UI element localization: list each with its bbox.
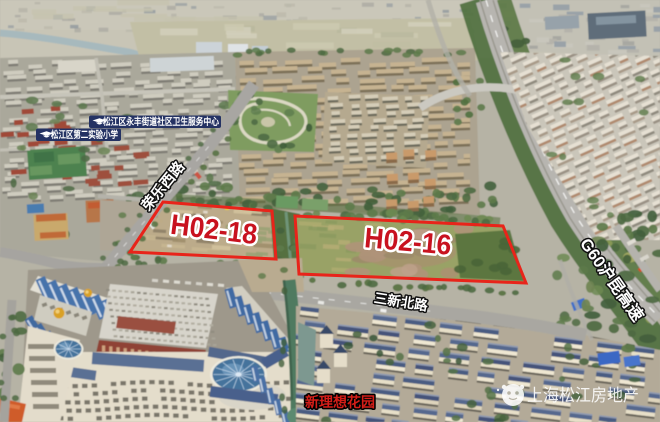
svg-text:新理想花园: 新理想花园 xyxy=(305,394,375,410)
svg-text:上海松江房地产: 上海松江房地产 xyxy=(527,386,639,405)
svg-text:松江区第二实验小学: 松江区第二实验小学 xyxy=(51,129,118,141)
svg-text:松江区永丰街道社区卫生服务中心: 松江区永丰街道社区卫生服务中心 xyxy=(103,116,219,128)
